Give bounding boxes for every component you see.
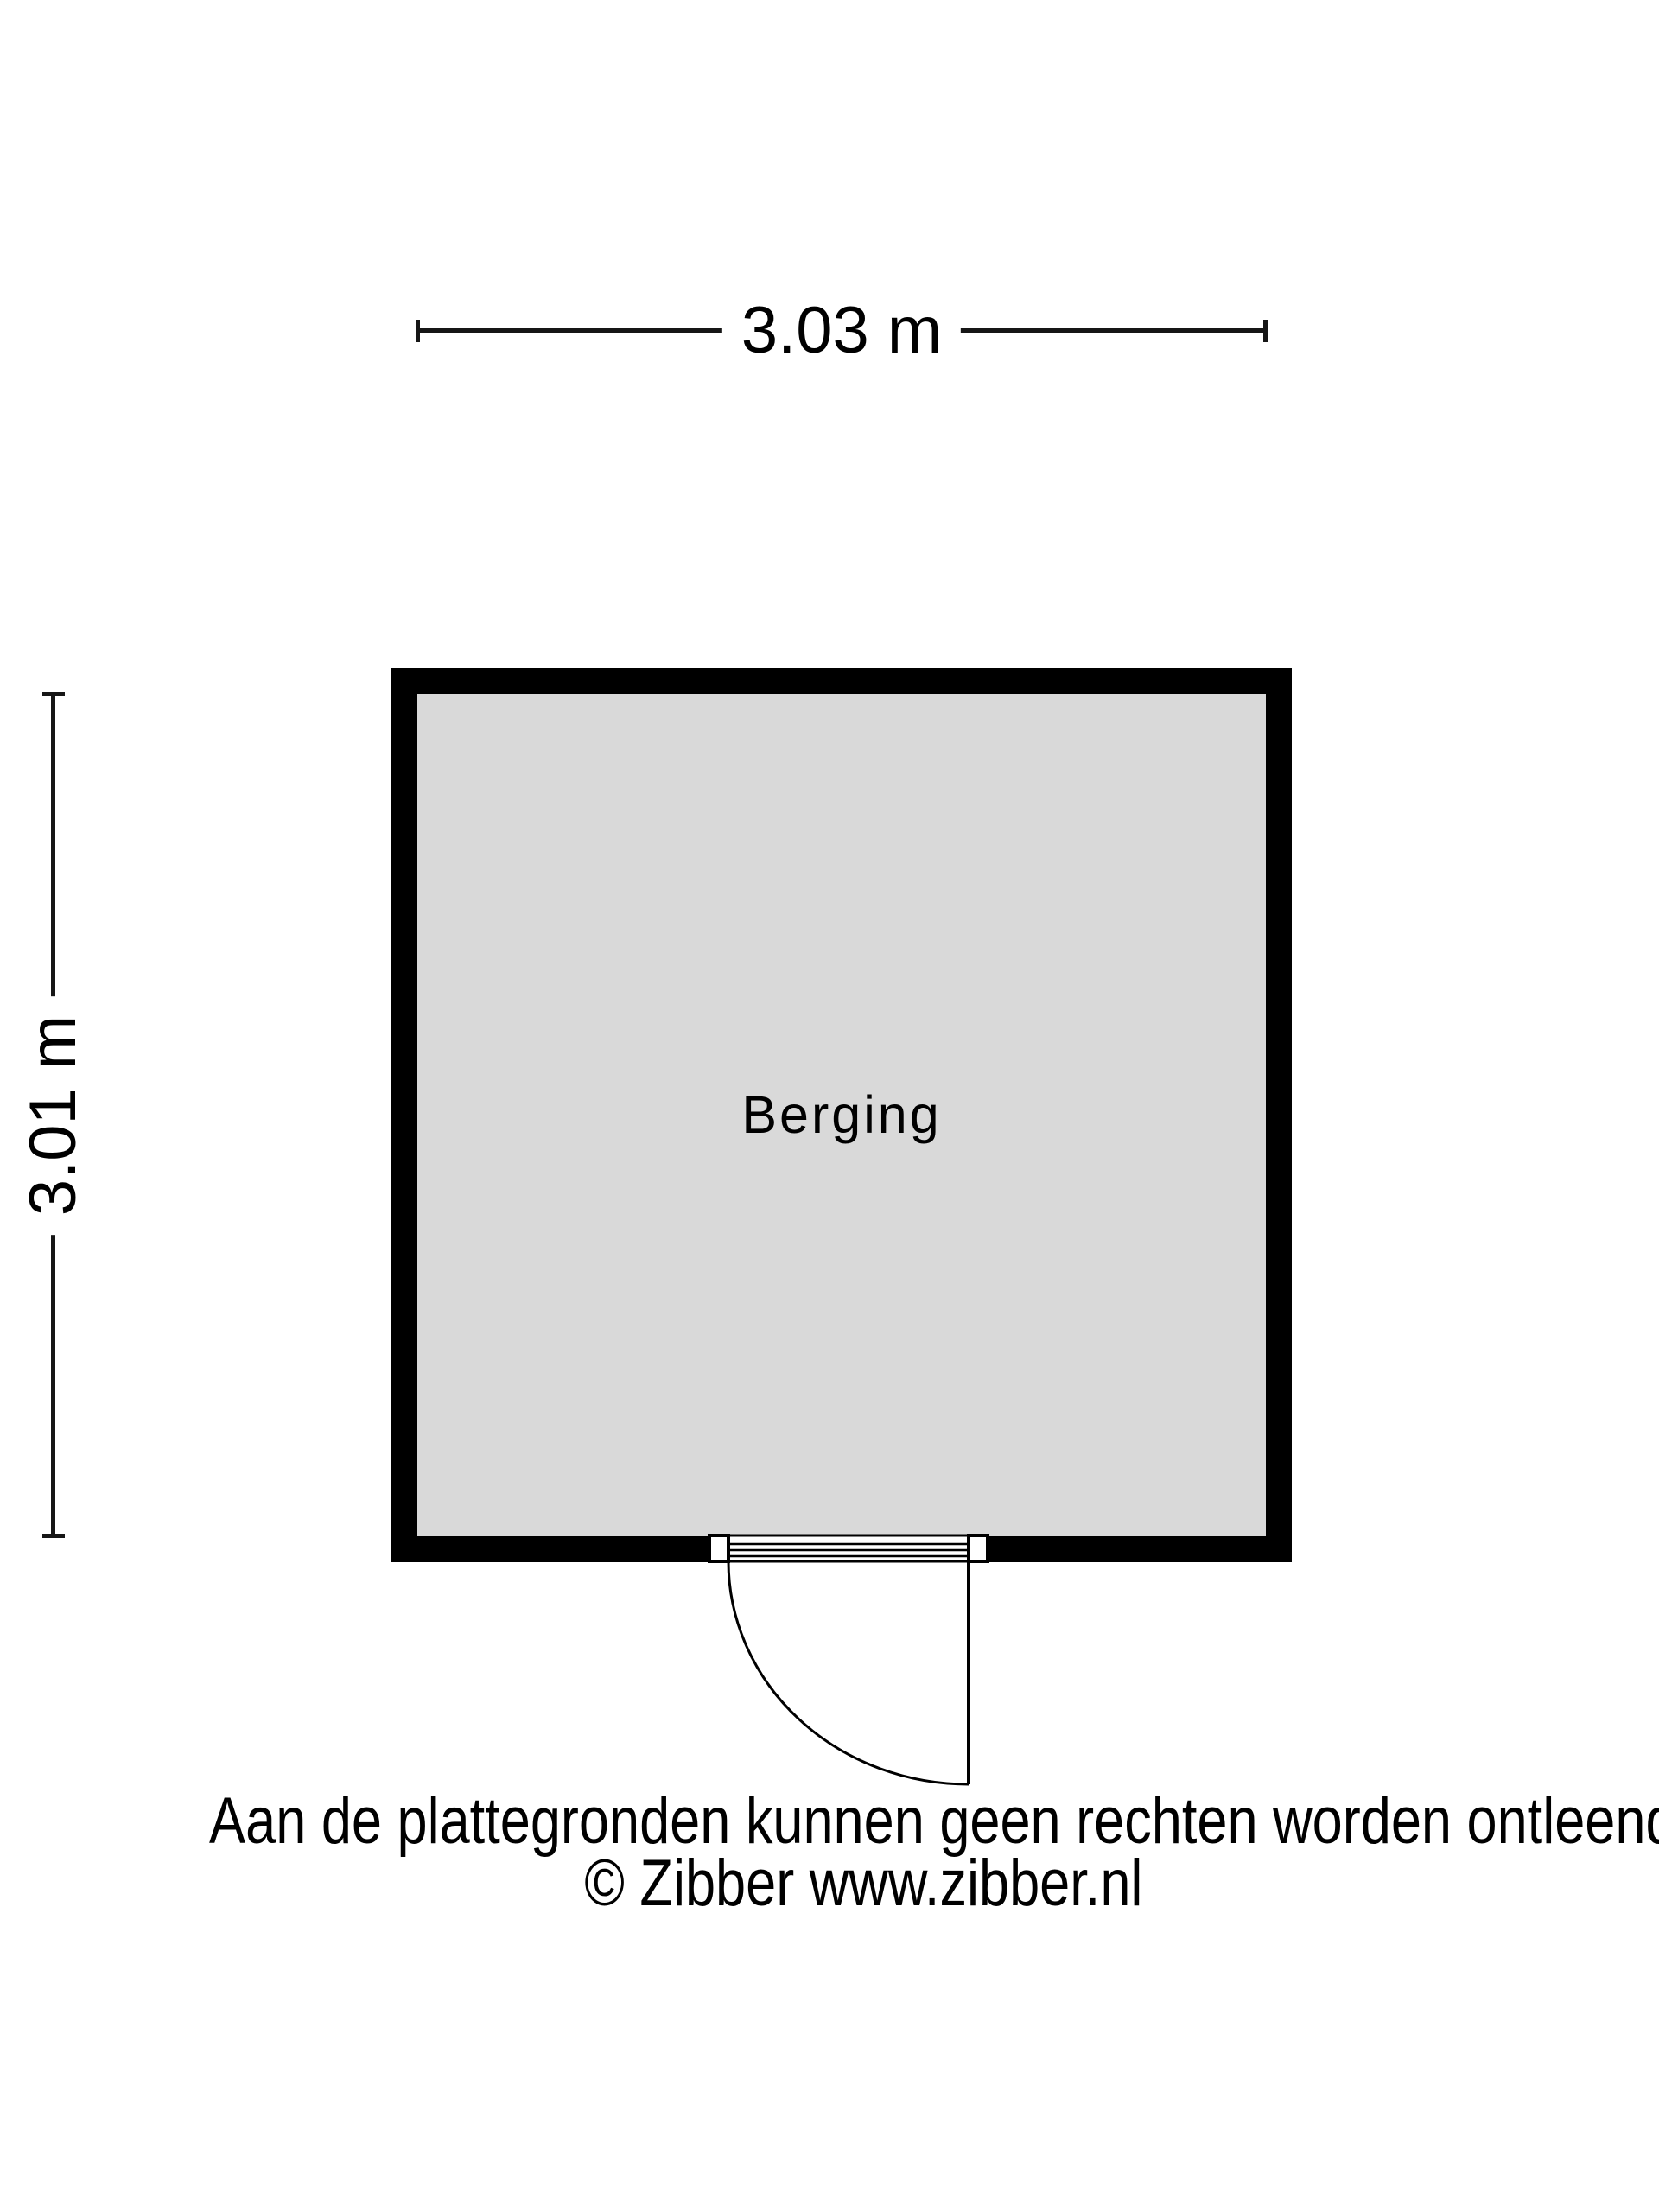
dimension-width: 3.03 m [417,312,1266,350]
door-jamb-left [709,1535,728,1561]
footer-disclaimer: Aan de plattegronden kunnen geen rechten… [141,1787,1518,1856]
dimension-width-tick-left [416,320,420,342]
dimension-height-tick-bottom [42,1534,65,1538]
floor-plan-page: 3.03 m 3.01 m Berging Aan de plattegrond… [0,0,1659,2212]
dimension-width-label: 3.03 m [722,295,961,367]
dimension-width-tick-right [1263,320,1268,342]
door-swing-arc [728,1561,969,1784]
dimension-height-label: 3.01 m [17,995,90,1234]
room-berging: Berging [391,668,1292,1562]
footer-copyright: © Zibber www.zibber.nl [141,1849,1518,1918]
dimension-height: 3.01 m [35,694,73,1536]
dimension-height-tick-top [42,692,65,696]
room-label: Berging [741,1089,941,1141]
door [674,1503,1054,1832]
door-threshold [728,1535,969,1561]
door-jamb-right [969,1535,988,1561]
